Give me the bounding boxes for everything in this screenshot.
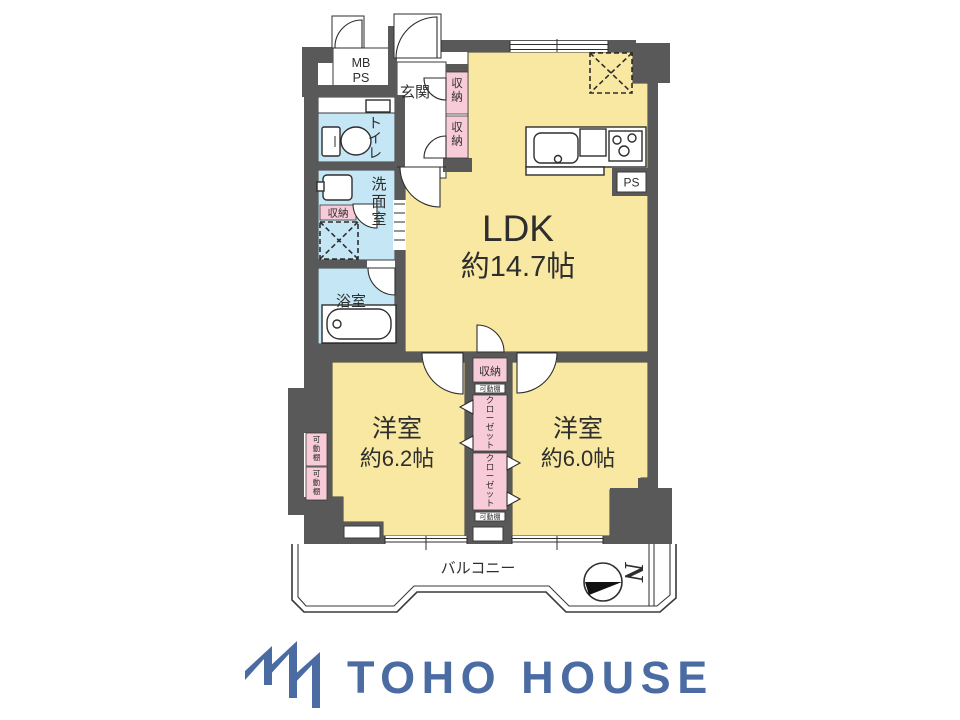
toilet-fixture bbox=[322, 127, 371, 156]
floorplan-canvas: N MB PS 玄関 トイレ 洗面室 浴室 収納 収納 収納 PS LDK 約1… bbox=[0, 0, 960, 720]
window-small-west bbox=[344, 526, 380, 538]
bedroom-east-size: 約6.0帖 bbox=[541, 446, 616, 471]
bedroom-east-name: 洋室 bbox=[553, 415, 603, 443]
opening-under-column bbox=[473, 527, 503, 541]
bedroom-west-name: 洋室 bbox=[372, 415, 422, 443]
entrance-label: 玄関 bbox=[400, 84, 430, 101]
hall-storage-label: 収納 bbox=[479, 365, 501, 378]
niche-shelf-2-label: 可動棚 bbox=[313, 469, 321, 496]
kitchen-middle bbox=[580, 129, 606, 156]
brand-logo-mark bbox=[245, 641, 320, 708]
toilet-cistern bbox=[366, 100, 390, 112]
bathroom-label: 浴室 bbox=[336, 293, 366, 310]
window-bedroom-east bbox=[512, 536, 603, 550]
bedroom-west-size: 約6.2帖 bbox=[360, 446, 435, 471]
washroom-label: 洗面室 bbox=[371, 176, 386, 228]
balcony-label: バルコニー bbox=[441, 560, 516, 577]
window-bedroom-west bbox=[385, 536, 467, 550]
kitchen-stove bbox=[609, 131, 642, 161]
balcony: N bbox=[292, 544, 676, 612]
mb-label: MB bbox=[352, 56, 371, 70]
closet-east-label: クローゼット bbox=[486, 453, 495, 508]
shelf-bottom-label: 可動棚 bbox=[480, 512, 501, 521]
ldk-name: LDK bbox=[482, 208, 554, 249]
ps-label-kitchen: PS bbox=[623, 176, 639, 190]
sliding-door-track bbox=[393, 200, 406, 250]
shelf-top-label: 可動棚 bbox=[480, 384, 501, 393]
kitchen-lower-strip bbox=[526, 167, 604, 175]
compass: N bbox=[584, 561, 649, 601]
closet-west-label: クローゼット bbox=[486, 395, 495, 450]
ps-label-mb: PS bbox=[353, 71, 370, 85]
bathtub bbox=[322, 305, 396, 343]
compass-north-label: N bbox=[619, 561, 649, 583]
toilet-label: トイレ bbox=[368, 115, 382, 161]
brand-name: TOHO HOUSE bbox=[347, 652, 714, 703]
washroom-storage-label: 収納 bbox=[328, 207, 349, 220]
niche-shelf-1-label: 可動棚 bbox=[313, 435, 321, 462]
ldk-size: 約14.7帖 bbox=[461, 250, 575, 283]
brand-footer: TOHO HOUSE bbox=[245, 641, 714, 708]
kitchen-faucet bbox=[555, 156, 562, 163]
